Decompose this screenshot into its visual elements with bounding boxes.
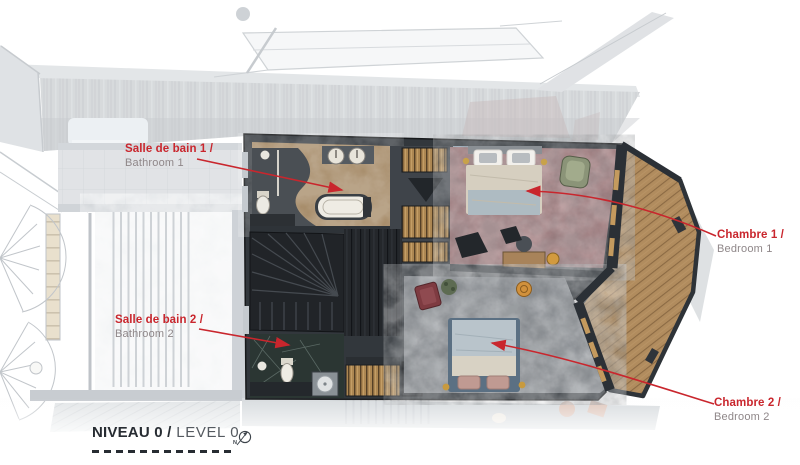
main-plan-area [242,134,699,400]
callout-bedroom-1: Chambre 1 / Bedroom 1 [717,229,784,256]
callout-bedroom-1-title: Chambre 1 / [717,229,784,242]
north-compass-icon: N [232,428,256,448]
callout-bathroom-1: Salle de bain 1 / Bathroom 1 [125,143,213,170]
level-title-en: LEVEL 0 [172,424,240,441]
callout-bathroom-2: Salle de bain 2 / Bathroom 2 [115,314,203,341]
floor-plan-page: Salle de bain 1 / Bathroom 1 Salle de ba… [0,0,800,465]
callout-bedroom-2-subtitle: Bedroom 2 [714,411,781,424]
compass-north-letter: N [233,440,237,446]
title-underline-dashes [92,450,233,453]
callout-bathroom-1-subtitle: Bathroom 1 [125,157,213,170]
callout-bathroom-2-subtitle: Bathroom 2 [115,328,203,341]
callout-bedroom-1-subtitle: Bedroom 1 [717,243,784,256]
callout-bathroom-1-title: Salle de bain 1 / [125,143,213,156]
callout-bedroom-2-title: Chambre 2 / [714,397,781,410]
stairs-area [250,229,402,336]
floor-plan-rendering [0,0,800,465]
bedroom-1-area [450,146,618,278]
callout-bathroom-2-title: Salle de bain 2 / [115,314,203,327]
level-title-fr: NIVEAU 0 / [92,424,172,441]
callout-bedroom-2: Chambre 2 / Bedroom 2 [714,397,781,424]
level-title-block: NIVEAU 0 / LEVEL 0 [92,424,239,441]
level-title: NIVEAU 0 / LEVEL 0 [92,424,239,441]
